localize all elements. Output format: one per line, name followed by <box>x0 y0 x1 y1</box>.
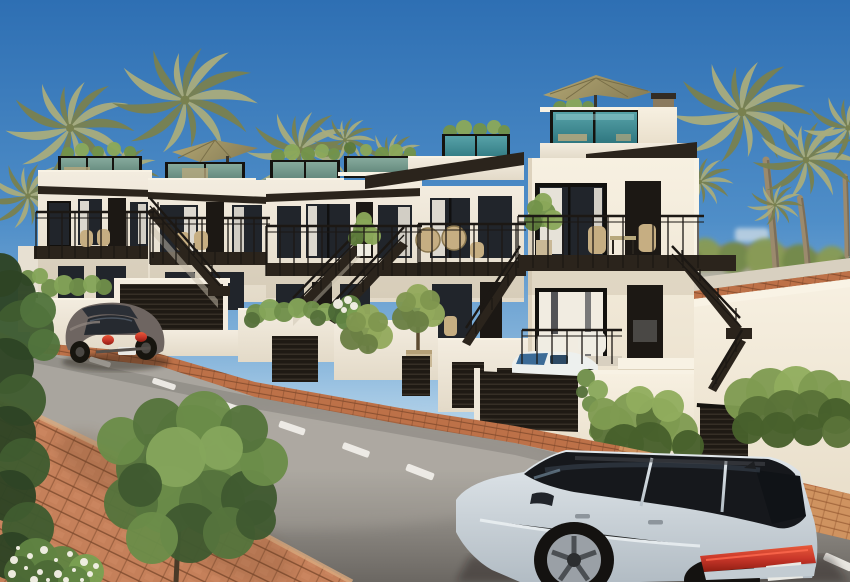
townhouse-street-scene <box>0 0 850 582</box>
garden-wall <box>158 330 238 356</box>
stair-bulkhead <box>638 107 677 145</box>
entry-door <box>108 198 126 246</box>
door-handle <box>575 514 590 519</box>
corner-hedge <box>724 366 850 448</box>
balcony-slab <box>150 252 270 265</box>
balcony-slab <box>518 255 736 271</box>
taillight <box>135 332 147 342</box>
balcony-slab <box>34 246 154 259</box>
door-handle <box>648 520 663 525</box>
taillight <box>102 335 114 345</box>
garage-door <box>272 336 318 382</box>
plant-pot <box>536 240 552 255</box>
slatted-planter <box>402 356 430 396</box>
render-image <box>0 0 850 582</box>
